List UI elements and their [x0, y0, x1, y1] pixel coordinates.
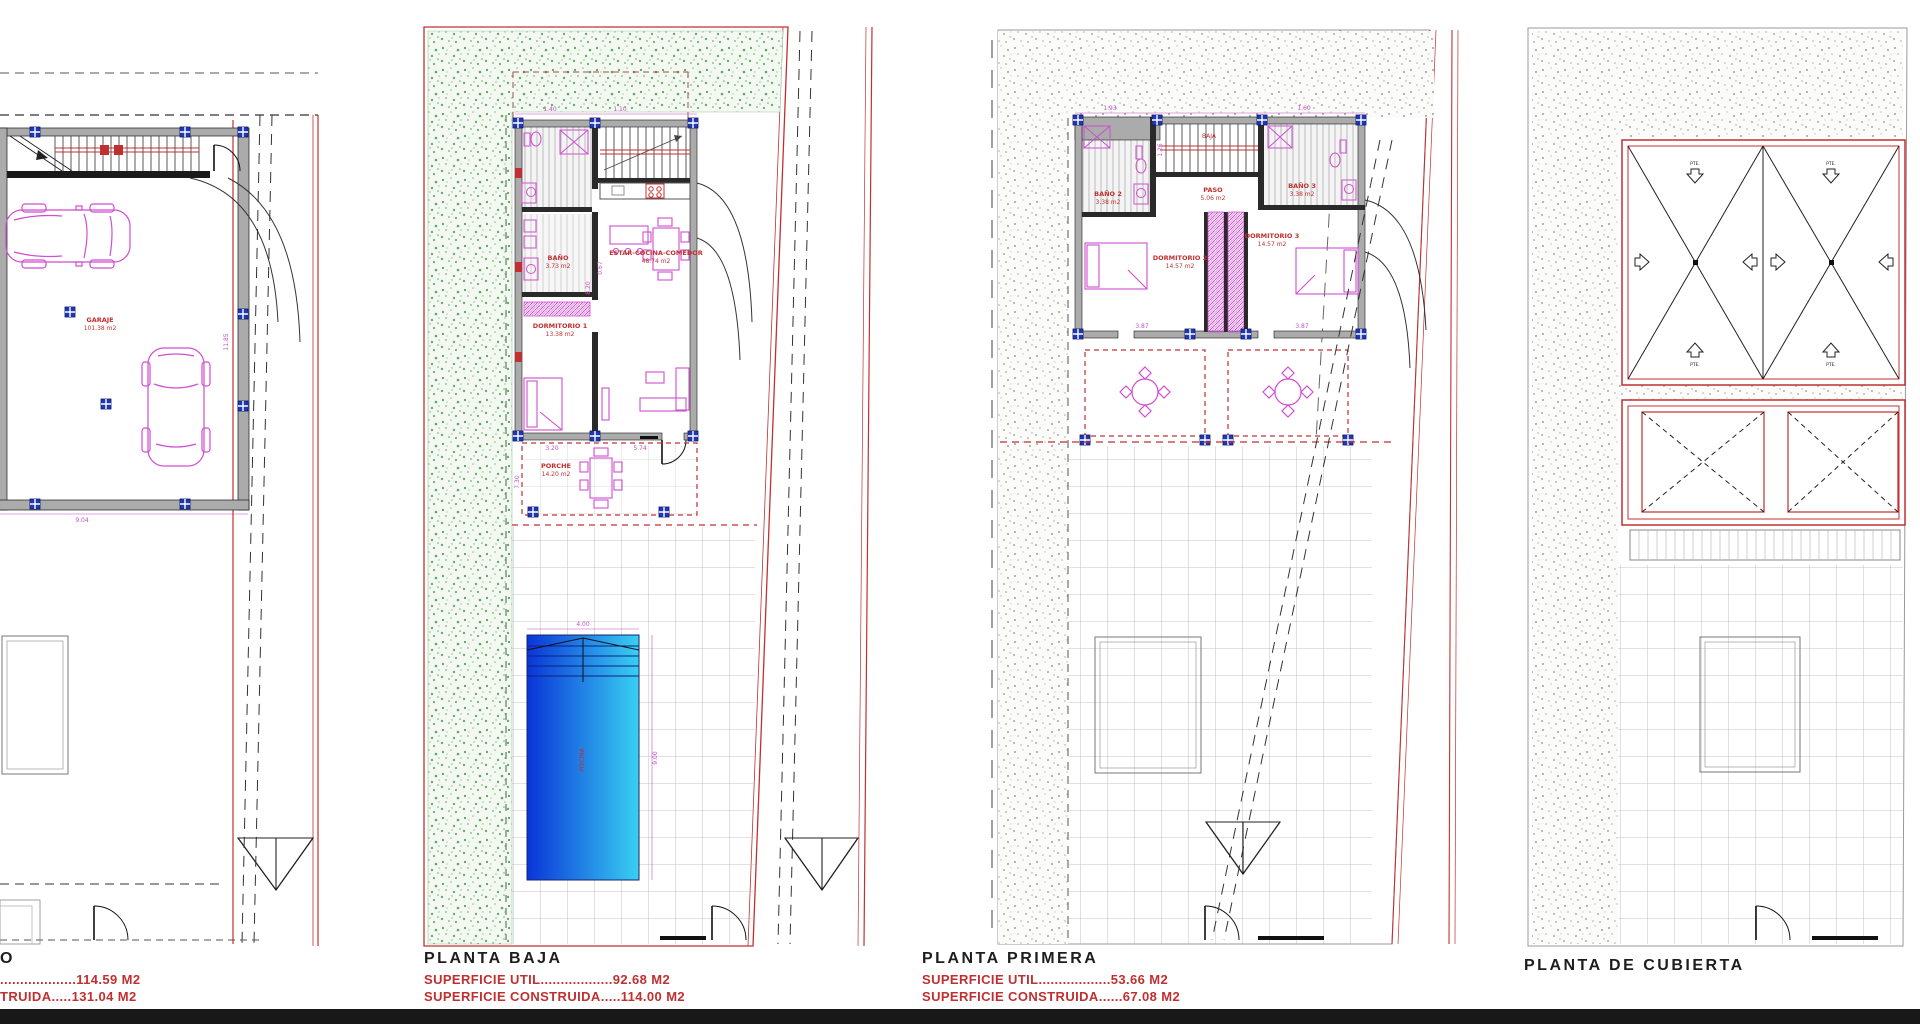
room-porche-label: PORCHE [541, 462, 571, 470]
pool-label: PISCINA [579, 747, 586, 772]
sofa [602, 368, 689, 420]
svg-text:1.40: 1.40 [543, 106, 557, 113]
pool-dim-height: 9.00 [652, 751, 659, 765]
svg-text:0.67: 0.67 [597, 261, 604, 275]
terrace-table [1120, 367, 1170, 417]
dim-width: 9.04 [75, 517, 89, 524]
superficie-util: ...................114.59 M2 [0, 971, 300, 988]
plan-baja-drawing: BAÑO 3.73 m2 DORMITORIO 1 13.38 m2 [410, 0, 880, 1010]
wardrobes [1204, 212, 1248, 332]
lower-terrace [0, 636, 260, 944]
stairs [600, 127, 690, 178]
room-bano3-label: BAÑO 3 [1288, 181, 1316, 190]
svg-text:8.20: 8.20 [585, 281, 592, 295]
room-paso-area: 5.06 m2 [1201, 195, 1226, 202]
stairs [10, 136, 199, 171]
plan-title: PLANTA DE CUBIERTA [1524, 957, 1854, 975]
room-dorm2-label: DORMITORIO 2 [1153, 254, 1208, 262]
terrace-table [1263, 367, 1313, 417]
turn-arrow [238, 838, 313, 890]
room-dorm1-label: DORMITORIO 1 [533, 322, 588, 330]
door-arc [214, 145, 240, 171]
garage-label: GARAJE [86, 316, 113, 324]
house: BAÑO 3.73 m2 DORMITORIO 1 13.38 m2 [513, 106, 703, 489]
room-dorm3-area: 14.57 m2 [1258, 241, 1287, 248]
car [142, 348, 210, 466]
pool-dim-width: 4.00 [576, 621, 590, 628]
footer-bar [0, 1009, 1920, 1024]
driveway [190, 178, 313, 890]
roof-panel: PTE. PTE. PTE. PTE. [1622, 140, 1905, 385]
bed [1085, 243, 1147, 289]
dormitorio1: DORMITORIO 1 13.38 m2 [524, 302, 590, 430]
title-block-baja: PLANTA BAJA SUPERFICIE UTIL.............… [424, 950, 754, 1005]
drawing-sheet: GARAJE 101.38 m2 11.85 9.04 [0, 0, 1920, 1024]
room-dorm3-label: DORMITORIO 3 [1245, 232, 1300, 240]
room-porche-area: 14.20 m2 [542, 471, 571, 478]
bed [1296, 248, 1358, 294]
room-dorm2-area: 14.57 m2 [1166, 263, 1195, 270]
turn-arrow [785, 838, 858, 890]
slope-label: PTE. [1826, 161, 1836, 167]
title-block-primera: PLANTA PRIMERA SUPERFICIE UTIL..........… [922, 950, 1252, 1005]
svg-text:3.20: 3.20 [545, 445, 559, 452]
stair-label: BAJA [1202, 133, 1217, 140]
title-block-sotano: O ...................114.59 M2 TRUIDA...… [0, 950, 300, 1005]
pergola-strip [1630, 530, 1900, 560]
kitchen [600, 183, 690, 254]
slope-label: PTE. [1690, 161, 1700, 167]
room-bano-area: 3.73 m2 [546, 263, 571, 270]
slope-label: PTE. [1826, 362, 1836, 368]
room-estar-area: 48.74 m2 [642, 258, 671, 265]
plan-cubierta-drawing: PTE. PTE. PTE. PTE. [1515, 0, 1920, 1010]
garage-area: 101.38 m2 [84, 325, 117, 332]
door-arc [94, 906, 128, 940]
superficie-construida: SUPERFICIE CONSTRUIDA......67.08 M2 [922, 988, 1252, 1005]
room-bano2-label: BAÑO 2 [1094, 189, 1122, 198]
svg-text:1.60: 1.60 [1297, 105, 1311, 112]
plan-title: PLANTA PRIMERA [922, 950, 1252, 968]
svg-text:1.93: 1.93 [1103, 105, 1117, 112]
superficie-construida: SUPERFICIE CONSTRUIDA.....114.00 M2 [424, 988, 754, 1005]
pool: PISCINA 4.00 9.00 [527, 621, 659, 880]
terrace-tiles [1618, 565, 1903, 944]
superficie-util: SUPERFICIE UTIL..................53.66 M… [922, 971, 1252, 988]
svg-text:3.87: 3.87 [1295, 323, 1309, 330]
room-bano-label: BAÑO [548, 253, 569, 262]
svg-text:1.26: 1.26 [1157, 143, 1164, 157]
room-paso-label: PASO [1203, 186, 1223, 194]
terrace-tiles [1068, 446, 1372, 944]
stairs: BAJA [1160, 124, 1258, 172]
room-estar-label: ESTAR-COCINA-COMEDOR [609, 249, 703, 257]
plan-title: O [0, 950, 300, 968]
room-bano3-area: 3.38 m2 [1290, 191, 1315, 198]
dim-height: 11.85 [223, 333, 230, 350]
plan-sotano-drawing: GARAJE 101.38 m2 11.85 9.04 [0, 0, 340, 1010]
superficie-util: SUPERFICIE UTIL..................92.68 M… [424, 971, 754, 988]
title-block-cubierta: PLANTA DE CUBIERTA [1524, 957, 1854, 978]
svg-text:7.30: 7.30 [514, 475, 521, 489]
svg-text:3.87: 3.87 [1135, 323, 1149, 330]
room-dorm1-area: 13.38 m2 [546, 331, 575, 338]
house: BAJA BAÑO 2 3.38 m2 BAÑO 3 3.38 m2 PASO … [1073, 105, 1366, 339]
plan-title: PLANTA BAJA [424, 950, 754, 968]
superficie-construida: TRUIDA.....131.04 M2 [0, 988, 300, 1005]
plan-primera-drawing: BAJA BAÑO 2 3.38 m2 BAÑO 3 3.38 m2 PASO … [950, 0, 1480, 1010]
room-bano2-area: 3.38 m2 [1096, 199, 1121, 206]
svg-text:1.10: 1.10 [613, 106, 627, 113]
car [6, 204, 130, 268]
slope-label: PTE. [1690, 362, 1700, 368]
garage-building: GARAJE 101.38 m2 11.85 9.04 [0, 127, 249, 524]
svg-text:5.74: 5.74 [633, 445, 647, 452]
roof-panel-lower [1622, 400, 1905, 525]
